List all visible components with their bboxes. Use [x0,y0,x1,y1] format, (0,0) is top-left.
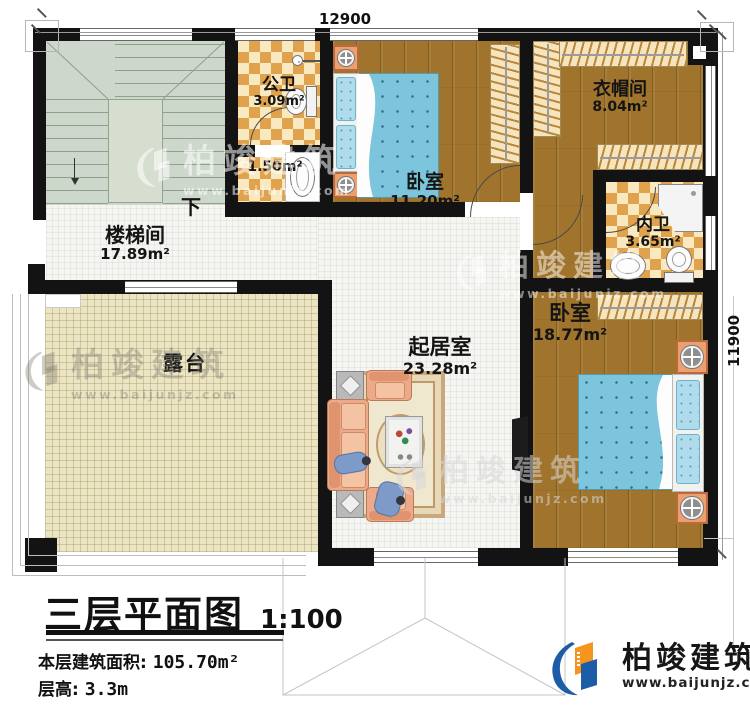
pillow [336,77,356,121]
wall-bath-left [593,170,606,285]
window [330,28,478,41]
nightstand [333,45,359,71]
dimension-tick [37,8,47,18]
terrace-parapet-line [28,294,306,556]
window [705,216,716,270]
floor-height-row: 层高: 3.3m [38,675,128,700]
wall-central-upper [520,28,533,193]
wardrobe [490,44,520,164]
toilet-tank [664,272,694,283]
sink-icon [610,252,646,280]
side-table [336,489,364,518]
nightstand [333,172,359,198]
room-label-living: 起居室 23.28m² [385,336,495,377]
window [235,28,315,41]
faucet-stem [303,60,320,62]
reference-box [25,20,59,52]
room-label-cloakroom: 衣帽间 8.04m² [570,80,670,116]
cup-decor [396,453,414,461]
sofa [327,399,369,491]
dimension-line-right [722,32,723,560]
title-underline-thick [46,630,284,635]
stair-down-label: 下 [178,196,204,218]
eaves-line [704,538,734,539]
floor-height-label: 层高: [38,680,79,700]
room-label-stairwell: 楼梯间 17.89m² [85,224,185,263]
wall-central-lower [520,250,533,548]
side-table [336,371,364,400]
stair-direction-arrow [74,158,75,182]
floor-area-row: 本层建筑面积: 105.70m² [38,648,239,673]
brand-logo-icon [538,636,614,698]
dimension-tick [697,10,707,20]
dimension-width: 12900 [310,10,380,28]
dimension-height: 11900 [725,311,743,371]
brand-name: 柏竣建筑 [622,643,750,675]
pillow [336,125,356,169]
wardrobe [597,144,703,170]
pillow [676,434,700,484]
window [568,551,678,563]
tv-icon [512,416,528,473]
window [80,28,192,41]
brand-logo: 柏竣建筑 www.baijunjz.com [538,636,750,698]
room-label-washroom: 1.50m² [236,160,314,176]
window [705,66,716,176]
nightstand [676,492,708,524]
room-label-terrace: 露台 [150,352,220,374]
floor-area-label: 本层建筑面积: [38,653,147,673]
room-label-bedroom-right: 卧室 18.77m² [525,302,615,343]
wall-stair-right [225,28,238,202]
dimension-line-top [35,32,718,33]
floor-area-value: 105.70m² [153,652,240,673]
room-label-inner-bath: 内卫 3.65m² [615,216,691,251]
flower-decor [392,425,416,447]
wardrobe [533,41,561,137]
coffee-table [385,416,423,468]
reference-box [700,22,734,52]
floor-plan: 12900 11900 公卫 3.09m² 1.50m² 卧室 11.20m² … [0,0,750,707]
brand-text: 柏竣建筑 www.baijunjz.com [622,643,750,691]
pillow [676,380,700,430]
title-underline-thin [46,639,283,641]
wall-cloak-bath [593,170,718,182]
wall-bedroom-top-left [320,28,333,217]
floor-height-value: 3.3m [85,679,128,700]
wall-segment [238,145,255,157]
faucet-icon [292,55,303,66]
wardrobe [559,41,687,67]
brand-website: www.baijunjz.com [622,675,750,691]
nightstand [676,340,708,374]
room-label-public-bath: 公卫 3.09m² [234,76,324,110]
wall-left [33,28,46,220]
window-terrace-door [125,281,237,293]
room-label-bedroom-top: 卧室 11.20m² [375,172,475,210]
